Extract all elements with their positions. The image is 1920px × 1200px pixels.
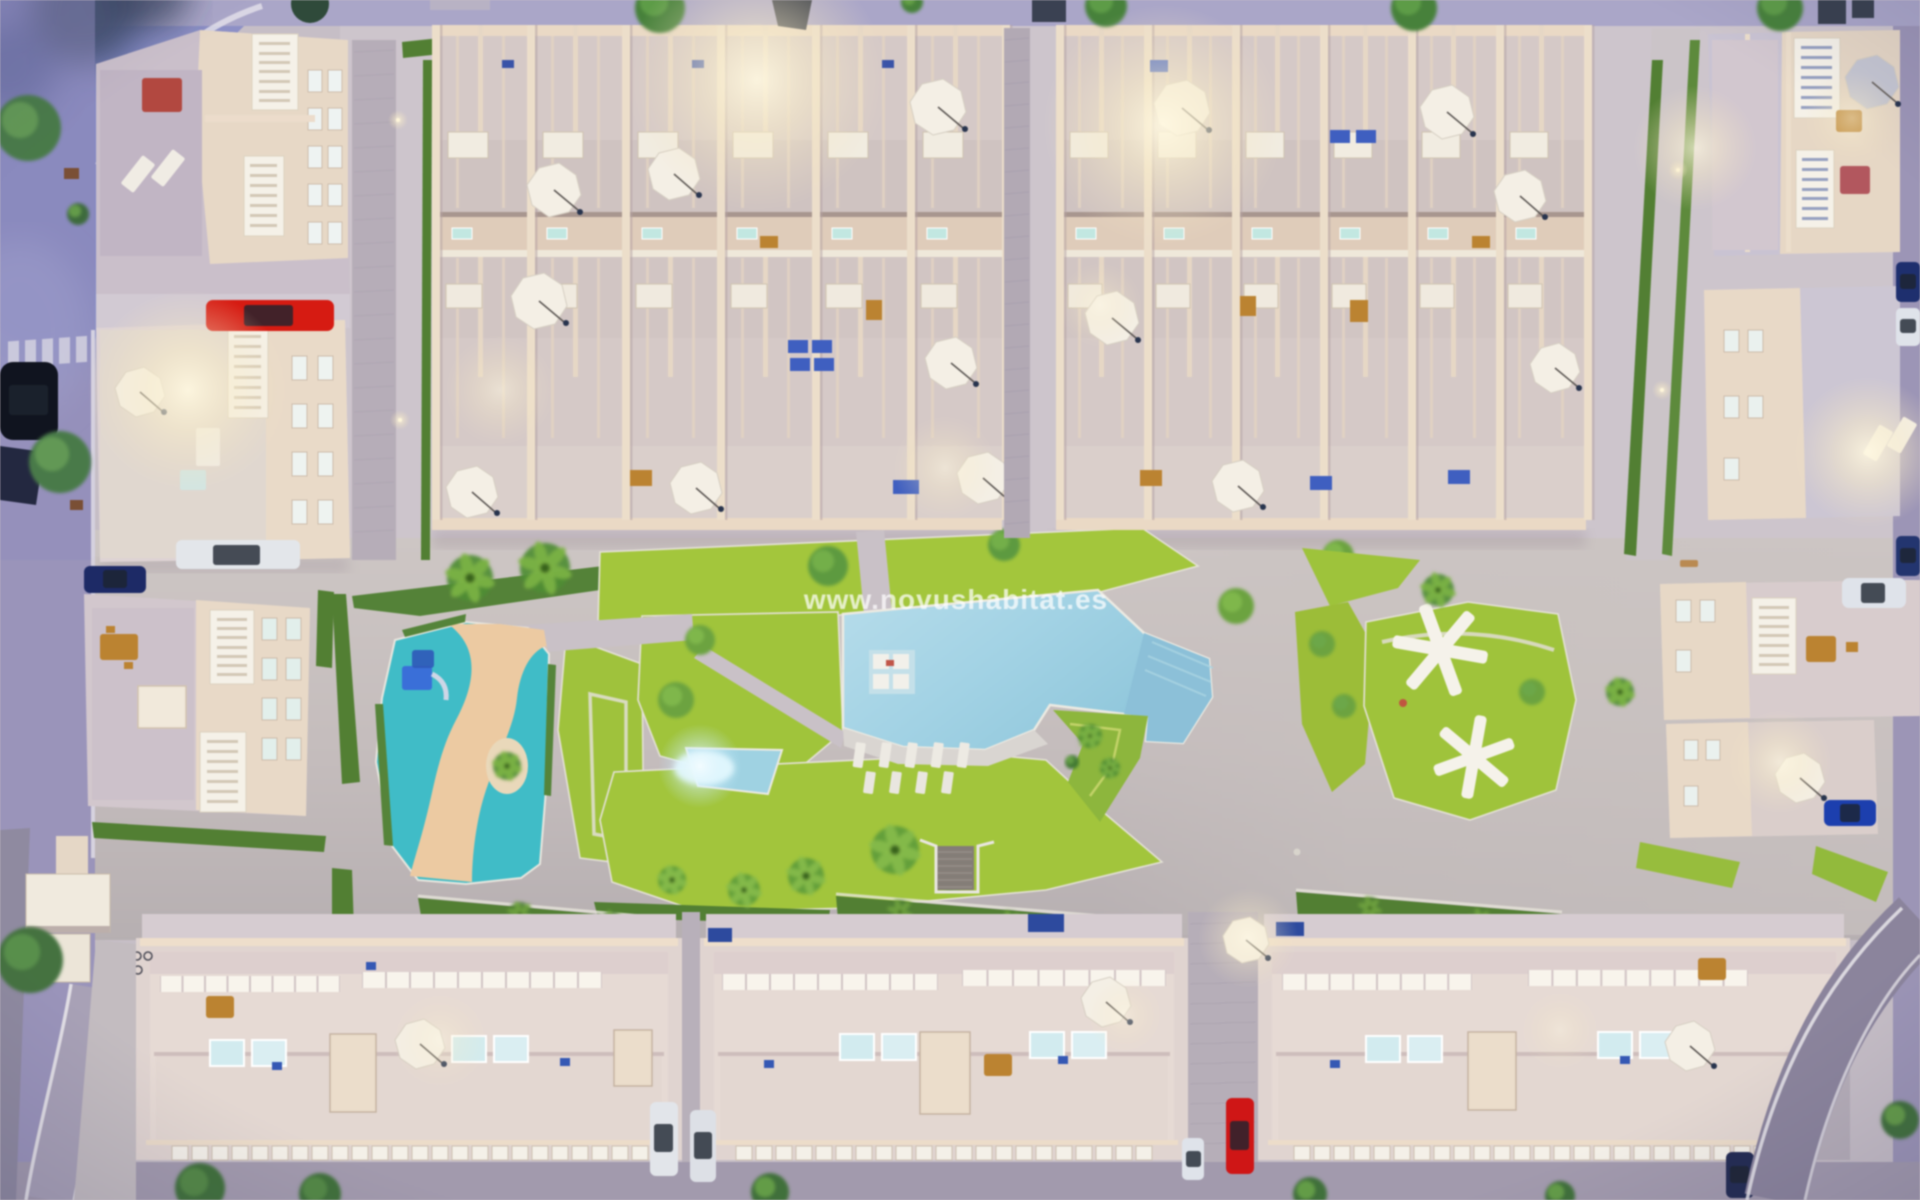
svg-text:www.novushabitat.es: www.novushabitat.es <box>803 584 1108 615</box>
